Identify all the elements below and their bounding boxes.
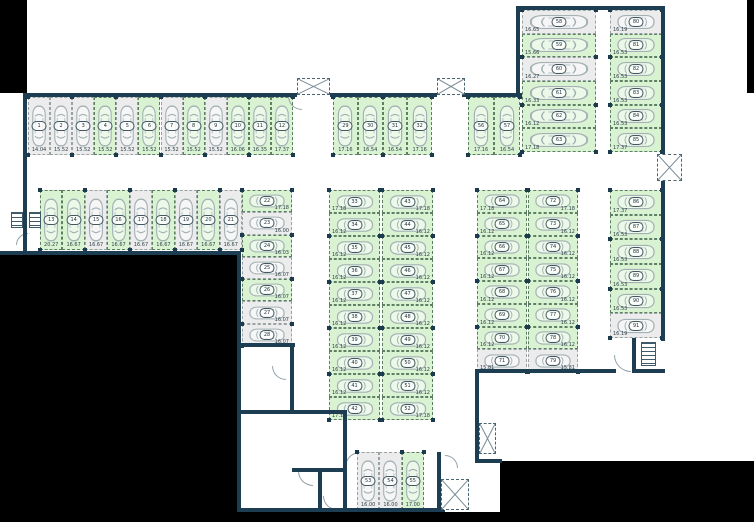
- stall-number: 60: [552, 64, 567, 74]
- stall-measurement: 16.53: [613, 98, 627, 104]
- corner-marker: [608, 103, 612, 107]
- stall-number: 76: [546, 287, 561, 297]
- corner-marker: [83, 188, 87, 192]
- corner-marker: [422, 450, 426, 454]
- stall-measurement: 16.07: [275, 317, 289, 323]
- parking-stall[interactable]: 4916.12: [382, 328, 433, 351]
- parking-stall[interactable]: 7416.12: [528, 236, 578, 259]
- parking-stall[interactable]: 4217.18: [329, 397, 380, 420]
- corner-marker: [247, 153, 251, 157]
- parking-stall[interactable]: 7016.12: [477, 327, 527, 350]
- stall-measurement: 15.52: [184, 147, 204, 153]
- parking-stall[interactable]: 6417.18: [477, 190, 527, 213]
- wall-segment: [343, 410, 347, 510]
- corner-marker: [475, 325, 479, 329]
- corner-marker: [608, 150, 612, 154]
- corner-marker: [594, 150, 598, 154]
- stall-number: 24: [260, 241, 275, 251]
- corner-marker: [38, 188, 42, 192]
- parking-stall[interactable]: 1116.35: [249, 97, 271, 155]
- wall-segment: [237, 343, 295, 347]
- stall-measurement: 16.67: [176, 242, 196, 248]
- stall-number: 40: [347, 358, 362, 368]
- corner-marker: [380, 234, 384, 238]
- stall-measurement: 16.53: [613, 232, 627, 238]
- stall-number: 57: [500, 121, 515, 131]
- corner-marker: [608, 237, 612, 241]
- parking-stall[interactable]: 5416.00: [379, 452, 401, 510]
- parking-stall[interactable]: 5915.66: [522, 34, 596, 58]
- corner-marker: [290, 233, 294, 237]
- corner-marker: [290, 277, 294, 281]
- parking-stall[interactable]: 6016.27: [522, 57, 596, 81]
- parking-stall[interactable]: 1516.67: [85, 190, 107, 250]
- stall-number: 35: [347, 243, 362, 253]
- corner-marker: [526, 234, 530, 238]
- parking-stall[interactable]: 4116.12: [329, 374, 380, 397]
- parking-stall[interactable]: 6317.18: [522, 128, 596, 152]
- stall-measurement: 16.67: [86, 242, 106, 248]
- stall-measurement: 16.12: [332, 321, 346, 327]
- stall-measurement: 16.12: [416, 229, 430, 235]
- stall-number: 49: [400, 335, 415, 345]
- stall-number: 22: [260, 196, 275, 206]
- stall-measurement: 16.54: [384, 147, 407, 153]
- parking-stall[interactable]: 615.52: [138, 97, 160, 155]
- parking-stall[interactable]: 8016.19: [610, 10, 662, 34]
- parking-stall[interactable]: 915.52: [205, 97, 227, 155]
- corner-marker: [466, 153, 470, 157]
- corner-marker: [608, 287, 612, 291]
- parking-stall[interactable]: 8517.37: [610, 128, 662, 152]
- wall-segment: [318, 468, 322, 510]
- parking-stall[interactable]: 2116.67: [220, 190, 242, 250]
- corner-marker: [431, 372, 435, 376]
- parking-stall[interactable]: 8816.53: [610, 239, 662, 264]
- parking-stall[interactable]: 6616.12: [477, 236, 527, 259]
- stall-number: 47: [400, 289, 415, 299]
- parking-stall[interactable]: 8916.53: [610, 264, 662, 289]
- stall-number: 61: [552, 88, 567, 98]
- parking-stall[interactable]: 7616.12: [528, 281, 578, 304]
- stall-measurement: 16.12: [561, 251, 575, 257]
- exterior-area: [0, 0, 27, 93]
- parking-stall[interactable]: 8716.53: [610, 215, 662, 240]
- wall-segment: [516, 6, 665, 10]
- parking-stall[interactable]: 4716.12: [382, 282, 433, 305]
- stall-number: 32: [412, 121, 427, 131]
- parking-stall[interactable]: 4816.12: [382, 305, 433, 328]
- corner-marker: [380, 418, 384, 422]
- stall-measurement: 16.12: [416, 344, 430, 350]
- parking-stall[interactable]: 2416.03: [242, 235, 292, 257]
- stall-number: 72: [546, 196, 561, 206]
- corner-marker: [576, 188, 580, 192]
- wall-segment: [237, 410, 347, 414]
- stall-measurement: 16.19: [613, 331, 627, 337]
- parking-stall[interactable]: 715.52: [161, 97, 183, 155]
- wall-segment: [462, 93, 522, 97]
- parking-stall[interactable]: 4016.12: [329, 351, 380, 374]
- corner-marker: [240, 188, 244, 192]
- stall-measurement: 16.54: [359, 147, 382, 153]
- parking-stall[interactable]: 2917.16: [333, 97, 358, 155]
- corner-marker: [290, 188, 294, 192]
- exterior-area: [500, 461, 754, 522]
- parking-stall[interactable]: 4416.12: [382, 213, 433, 236]
- wall-segment: [661, 180, 665, 341]
- parking-stall[interactable]: 2516.07: [242, 257, 292, 279]
- corner-marker: [608, 188, 612, 192]
- corner-marker: [327, 372, 331, 376]
- stall-measurement: 16.06: [228, 147, 248, 153]
- parking-stall[interactable]: 5116.12: [382, 374, 433, 397]
- stall-measurement: 16.12: [332, 252, 346, 258]
- stall-number: 68: [495, 287, 510, 297]
- stall-number: 23: [260, 218, 275, 228]
- stall-measurement: 16.65: [525, 27, 539, 33]
- corner-marker: [327, 188, 331, 192]
- stall-measurement: 16.67: [221, 242, 241, 248]
- parking-stall[interactable]: 3317.18: [329, 190, 380, 213]
- stall-number: 84: [629, 111, 644, 121]
- corner-marker: [291, 153, 295, 157]
- stall-measurement: 16.53: [613, 50, 627, 56]
- parking-stall[interactable]: 3916.12: [329, 328, 380, 351]
- parking-stall[interactable]: 3217.16: [407, 97, 432, 155]
- parking-stall[interactable]: 6716.12: [477, 258, 527, 281]
- parking-stall[interactable]: 4516.12: [382, 236, 433, 259]
- stall-number: 17: [133, 215, 148, 225]
- parking-stall[interactable]: 2217.18: [242, 190, 292, 212]
- stall-measurement: 16.67: [153, 242, 173, 248]
- wall-segment: [330, 93, 437, 97]
- stall-measurement: 16.12: [332, 344, 346, 350]
- corner-marker: [431, 418, 435, 422]
- parking-stall[interactable]: 1616.67: [107, 190, 129, 250]
- stall-measurement: 15.66: [525, 50, 539, 56]
- stall-number: 69: [495, 310, 510, 320]
- corner-marker: [526, 325, 530, 329]
- exterior-area: [747, 0, 754, 93]
- stall-number: 25: [260, 263, 275, 273]
- parking-stall[interactable]: 215.52: [50, 97, 72, 155]
- parking-stall[interactable]: 1016.06: [227, 97, 249, 155]
- parking-stall[interactable]: 2716.07: [242, 301, 292, 323]
- corner-marker: [380, 326, 384, 330]
- corner-marker: [355, 450, 359, 454]
- corner-marker: [327, 418, 331, 422]
- stall-number: 2: [54, 121, 69, 131]
- stall-measurement: 16.12: [416, 367, 430, 373]
- parking-stall[interactable]: 3016.54: [358, 97, 383, 155]
- stall-measurement: 16.33: [525, 98, 539, 104]
- stall-number: 5: [120, 121, 135, 131]
- stall-measurement: 16.12: [480, 342, 494, 348]
- door-arc-icon: [445, 455, 458, 468]
- stall-number: 28: [260, 330, 275, 340]
- stall-measurement: 16.35: [250, 147, 270, 153]
- corner-marker: [431, 326, 435, 330]
- stall-measurement: 16.12: [416, 321, 430, 327]
- parking-stall[interactable]: 6516.12: [477, 213, 527, 236]
- stall-number: 43: [400, 197, 415, 207]
- stall-measurement: 16.00: [275, 228, 289, 234]
- parking-stall[interactable]: 2016.67: [197, 190, 219, 250]
- parking-stall[interactable]: 7816.12: [528, 327, 578, 350]
- wall-segment: [27, 93, 297, 97]
- stall-measurement: 16.12: [525, 121, 539, 127]
- stall-number: 19: [178, 215, 193, 225]
- stall-measurement: 15.52: [73, 147, 93, 153]
- corner-marker: [203, 153, 207, 157]
- corner-marker: [400, 450, 404, 454]
- parking-stall[interactable]: 8416.53: [610, 105, 662, 129]
- door-arc-icon: [272, 366, 286, 380]
- stall-number: 80: [629, 17, 644, 27]
- parking-stall[interactable]: 3116.54: [383, 97, 408, 155]
- parking-stall[interactable]: 1716.67: [130, 190, 152, 250]
- vent-shaft-icon: [297, 78, 330, 95]
- corner-marker: [520, 150, 524, 154]
- stall-measurement: 17.16: [408, 147, 431, 153]
- stall-measurement: 16.53: [613, 282, 627, 288]
- wall-segment: [237, 508, 445, 512]
- stall-measurement: 14.04: [29, 147, 49, 153]
- parking-stall[interactable]: 8617.37: [610, 190, 662, 215]
- parking-stall[interactable]: 315.52: [72, 97, 94, 155]
- stall-number: 33: [347, 197, 362, 207]
- stall-measurement: 17.37: [272, 147, 292, 153]
- stall-measurement: 15.52: [206, 147, 226, 153]
- stall-number: 50: [400, 358, 415, 368]
- parking-stall[interactable]: 5617.16: [468, 97, 494, 155]
- stall-number: 27: [260, 308, 275, 318]
- stall-measurement: 15.52: [95, 147, 115, 153]
- stall-number: 75: [546, 265, 561, 275]
- stall-number: 56: [474, 121, 489, 131]
- parking-stall[interactable]: 6916.12: [477, 304, 527, 327]
- stall-measurement: 16.12: [561, 229, 575, 235]
- stall-number: 89: [629, 271, 644, 281]
- parking-stall[interactable]: 5016.12: [382, 351, 433, 374]
- stall-measurement: 16.67: [63, 242, 83, 248]
- stall-measurement: 16.12: [561, 342, 575, 348]
- stall-measurement: 16.12: [332, 367, 346, 373]
- stall-number: 4: [98, 121, 113, 131]
- stall-number: 82: [629, 64, 644, 74]
- stall-number: 77: [546, 310, 561, 320]
- corner-marker: [576, 279, 580, 283]
- stall-number: 53: [361, 476, 376, 486]
- stall-measurement: 17.18: [332, 206, 346, 212]
- stall-number: 8: [186, 121, 201, 131]
- wall-segment: [23, 93, 27, 255]
- stall-measurement: 17.18: [525, 145, 539, 151]
- door-arc-icon: [614, 355, 631, 372]
- corner-marker: [240, 233, 244, 237]
- door-arc-icon: [298, 471, 313, 486]
- parking-stall[interactable]: 8316.53: [610, 81, 662, 105]
- stall-number: 38: [347, 312, 362, 322]
- stall-measurement: 16.67: [131, 242, 151, 248]
- wall-segment: [632, 338, 636, 372]
- stall-number: 78: [546, 333, 561, 343]
- vent-shaft-icon: [479, 423, 496, 454]
- stall-number: 37: [347, 289, 362, 299]
- stall-measurement: 16.12: [332, 229, 346, 235]
- stall-measurement: 16.12: [332, 275, 346, 281]
- stall-number: 85: [629, 135, 644, 145]
- parking-stall[interactable]: 815.52: [183, 97, 205, 155]
- stall-measurement: 16.12: [480, 320, 494, 326]
- wall-segment: [632, 369, 665, 373]
- parking-stall[interactable]: 5517.00: [402, 452, 424, 510]
- corner-marker: [327, 326, 331, 330]
- stall-measurement: 17.16: [334, 147, 357, 153]
- stall-measurement: 16.12: [561, 274, 575, 280]
- parking-stall[interactable]: 4317.18: [382, 190, 433, 213]
- stall-measurement: 16.27: [525, 74, 539, 80]
- parking-stall[interactable]: 2616.07: [242, 279, 292, 301]
- corner-marker: [594, 55, 598, 59]
- stall-number: 88: [629, 247, 644, 257]
- parking-stall[interactable]: 515.52: [116, 97, 138, 155]
- stall-measurement: 16.12: [480, 274, 494, 280]
- stall-measurement: 16.54: [495, 147, 519, 153]
- corner-marker: [290, 322, 294, 326]
- stall-measurement: 17.37: [613, 145, 627, 151]
- stall-measurement: 17.18: [416, 413, 430, 419]
- stall-number: 81: [629, 40, 644, 50]
- stall-number: 86: [629, 197, 644, 207]
- corner-marker: [128, 188, 132, 192]
- parking-stall[interactable]: 3416.12: [329, 213, 380, 236]
- stall-measurement: 17.18: [416, 206, 430, 212]
- stairs-icon: [11, 212, 23, 228]
- stall-number: 34: [347, 220, 362, 230]
- parking-stall[interactable]: 7217.18: [528, 190, 578, 213]
- parking-stall[interactable]: 4616.12: [382, 259, 433, 282]
- stall-number: 13: [44, 215, 59, 225]
- wall-segment: [516, 6, 520, 96]
- stall-number: 74: [546, 242, 561, 252]
- corner-marker: [475, 188, 479, 192]
- stall-number: 83: [629, 88, 644, 98]
- stall-number: 64: [495, 196, 510, 206]
- stall-number: 63: [552, 135, 567, 145]
- parking-stall[interactable]: 1916.67: [175, 190, 197, 250]
- parking-stall[interactable]: 7316.12: [528, 213, 578, 236]
- parking-stall[interactable]: 5316.00: [357, 452, 379, 510]
- wall-segment: [237, 251, 241, 512]
- parking-stall[interactable]: 6816.12: [477, 281, 527, 304]
- stall-measurement: 16.12: [561, 320, 575, 326]
- parking-stall[interactable]: 7716.12: [528, 304, 578, 327]
- corner-marker: [526, 188, 530, 192]
- stall-measurement: 15.52: [162, 147, 182, 153]
- corner-marker: [526, 279, 530, 283]
- wall-segment: [475, 459, 502, 463]
- stall-number: 29: [338, 121, 353, 131]
- door-arc-icon: [345, 452, 360, 467]
- wall-segment: [0, 251, 241, 255]
- parking-stall[interactable]: 3716.12: [329, 282, 380, 305]
- parking-stall[interactable]: 3516.12: [329, 236, 380, 259]
- corner-marker: [431, 280, 435, 284]
- stall-number: 44: [400, 220, 415, 230]
- stall-measurement: 16.12: [332, 298, 346, 304]
- corner-marker: [381, 153, 385, 157]
- parking-stall[interactable]: 5816.65: [522, 10, 596, 34]
- stall-number: 79: [546, 356, 561, 366]
- stall-measurement: 16.12: [561, 297, 575, 303]
- stall-number: 71: [495, 356, 510, 366]
- stall-number: 59: [552, 40, 567, 50]
- parking-stall[interactable]: 3816.12: [329, 305, 380, 328]
- stall-number: 51: [400, 381, 415, 391]
- stall-number: 67: [495, 265, 510, 275]
- parking-stall[interactable]: 9016.53: [610, 289, 662, 314]
- corner-marker: [608, 55, 612, 59]
- parking-stall[interactable]: 2316.00: [242, 212, 292, 234]
- parking-stall[interactable]: 415.52: [94, 97, 116, 155]
- parking-stall[interactable]: 5716.54: [494, 97, 520, 155]
- stall-number: 10: [230, 121, 245, 131]
- corner-marker: [331, 153, 335, 157]
- stall-number: 1: [32, 121, 47, 131]
- stall-measurement: 16.12: [416, 275, 430, 281]
- corner-marker: [475, 279, 479, 283]
- parking-stall[interactable]: 1217.37: [271, 97, 293, 155]
- corner-marker: [159, 153, 163, 157]
- stall-number: 90: [629, 296, 644, 306]
- stall-measurement: 16.12: [332, 390, 346, 396]
- wall-segment: [290, 345, 294, 413]
- parking-stall[interactable]: 114.04: [28, 97, 50, 155]
- parking-stall[interactable]: 6216.12: [522, 105, 596, 129]
- corner-marker: [431, 234, 435, 238]
- stall-number: 14: [66, 215, 81, 225]
- stall-number: 36: [347, 266, 362, 276]
- parking-stall[interactable]: 5217.18: [382, 397, 433, 420]
- stall-measurement: 15.52: [117, 147, 137, 153]
- parking-stall[interactable]: 3616.12: [329, 259, 380, 282]
- parking-stall[interactable]: 8116.53: [610, 34, 662, 58]
- stall-number: 16: [111, 215, 126, 225]
- parking-stall[interactable]: 6116.33: [522, 81, 596, 105]
- stall-number: 18: [156, 215, 171, 225]
- parking-stall[interactable]: 1320.27: [40, 190, 62, 250]
- stall-measurement: 16.12: [416, 298, 430, 304]
- stall-measurement: 16.53: [613, 74, 627, 80]
- stall-measurement: 16.53: [613, 257, 627, 263]
- stall-measurement: 16.12: [416, 252, 430, 258]
- stall-number: 39: [347, 335, 362, 345]
- parking-stall[interactable]: 1416.67: [62, 190, 84, 250]
- stall-number: 91: [629, 321, 644, 331]
- stall-measurement: 15.52: [51, 147, 71, 153]
- parking-stall[interactable]: 7516.12: [528, 258, 578, 281]
- parking-stall[interactable]: 1816.67: [152, 190, 174, 250]
- stall-number: 12: [274, 121, 289, 131]
- corner-marker: [380, 372, 384, 376]
- parking-stall[interactable]: 8216.53: [610, 57, 662, 81]
- stall-measurement: 20.27: [41, 242, 61, 248]
- corner-marker: [173, 188, 177, 192]
- stall-number: 46: [400, 266, 415, 276]
- parking-stall[interactable]: 9116.19: [610, 313, 662, 338]
